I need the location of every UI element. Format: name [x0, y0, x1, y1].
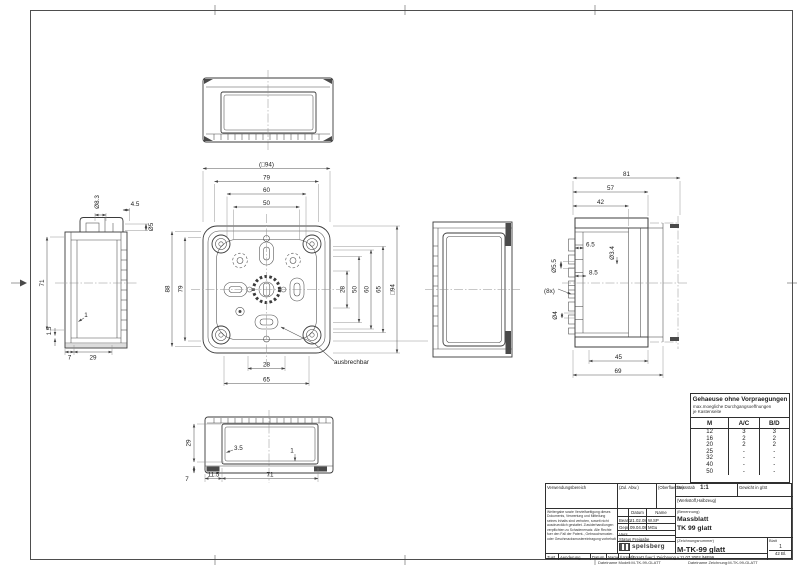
dim-label: 1 — [290, 448, 294, 455]
table-row: 2022 — [691, 442, 789, 449]
dim-label: Ø8.3 — [94, 195, 101, 209]
verwendungsbereich-cell: Verwendungsbereich — [546, 484, 618, 509]
front-view-dimensions: (□94) 79 60 50 88 79 28 50 60 65 □94 28 … — [165, 162, 401, 387]
table-row: 40-- — [691, 462, 789, 469]
drawing-sheet: (□94) 79 60 50 88 79 28 50 60 65 □94 28 … — [0, 0, 800, 566]
dim-label: 7 — [185, 476, 189, 483]
spelsberg-logo-text: spelsberg — [632, 543, 665, 550]
blatt-cell: Blatt 1 42 Bl. — [767, 538, 793, 560]
knockout-table-header: M A/C B/D — [691, 418, 789, 429]
oberflaeche-cell: (Oberflaeche) — [657, 484, 676, 509]
benennung-cell: (Benennung) Massblatt TK 99 glatt — [676, 509, 793, 538]
dim-label: 65 — [263, 377, 271, 384]
dim-label: 42 — [597, 199, 605, 206]
dim-label: (8x) — [544, 288, 555, 295]
gewicht-cell: Gewicht in g/St — [738, 484, 793, 497]
dim-label: 50 — [352, 286, 359, 294]
dim-label: (□94) — [259, 162, 274, 169]
top-view — [203, 70, 333, 150]
dim-label: 11.5 — [208, 472, 220, 479]
aenderung-cell: Aenderung — [558, 553, 590, 560]
oval-knockouts — [224, 242, 304, 329]
title-block: Verwendungsbereich (Zul. Abw.) (Oberflae… — [545, 483, 792, 559]
table-row: 25-- — [691, 449, 789, 456]
dim-label: 4.5 — [131, 201, 140, 208]
zust-cell: Zust. — [546, 553, 558, 560]
knockout-table-subtitle: max.moegliche Durchgangsoeffnungen je Ka… — [691, 404, 789, 418]
empty-label-cell — [618, 509, 629, 517]
side-elevation-view — [425, 222, 520, 357]
dim-label: 60 — [364, 286, 371, 294]
table-row: 1233 — [691, 429, 789, 436]
table-row: 50-- — [691, 469, 789, 476]
file-model-name: Dateiname Modell:M-TK-99-GLATT — [598, 560, 661, 565]
werkstoff-cell: (Werkstoff,Halbzeug) — [676, 497, 793, 509]
corner-screw — [303, 235, 321, 253]
massstab-cell: Massstab 1:1 — [676, 484, 738, 497]
dim-label: 1.5 — [46, 326, 53, 335]
dim-label: □94 — [390, 284, 397, 295]
dim-label: Ø4 — [552, 311, 559, 320]
name2-cell: Name — [606, 553, 618, 560]
logo-cell: spelsberg — [618, 542, 676, 553]
part-name-line2: TK 99 glatt — [677, 524, 792, 533]
dim-label: 88 — [165, 285, 172, 293]
dim-label: Ø3.4 — [609, 246, 616, 260]
dim-label: 7 — [68, 355, 72, 362]
part-name-line1: Massblatt — [677, 515, 792, 524]
left-side-view-dimensions: Ø8.3 4.5 Ø5 71 1.5 1 7 29 — [39, 195, 155, 362]
knockout-table-title: Gehaeuse ohne Vorpraegungen — [691, 394, 789, 404]
dim-label: 79 — [178, 285, 185, 293]
dim-label: 60 — [263, 187, 271, 194]
dim-label: 28 — [340, 286, 347, 294]
dim-label: 71 — [266, 472, 274, 479]
legal-text: Weitergabe sowie Vervielfaeltigung diese… — [546, 509, 618, 553]
top-view-rib-ticks — [214, 134, 319, 140]
spelsberg-logo-icon — [619, 543, 630, 551]
corner-screw — [212, 326, 230, 344]
gepr-name: MGu — [647, 524, 676, 531]
col-header-bd: B/D — [759, 418, 789, 428]
ausbrechbar-note: ausbrechbar — [334, 359, 369, 366]
orientation-arrow-icon — [11, 280, 27, 287]
gepr-label: Gepr. — [618, 524, 629, 531]
datum-col-header: Datum — [629, 509, 647, 517]
dim-label: 69 — [614, 368, 622, 375]
dim-label: 57 — [607, 185, 615, 192]
dim-label: 1 — [84, 312, 88, 319]
dim-label: 81 — [623, 171, 631, 178]
bearb-label: Bearb. — [618, 517, 629, 524]
knockout-table: Gehaeuse ohne Vorpraegungen max.moeglich… — [690, 393, 790, 483]
dim-label: 65 — [376, 286, 383, 294]
gepr-date: 09.04.08 — [629, 524, 647, 531]
dim-label: 6.5 — [586, 242, 595, 249]
drawing-frame — [11, 5, 797, 565]
bearb-name: W.SP — [647, 517, 676, 524]
knockout-table-body: 1233 1622 2022 25-- 32-- 40-- 50-- — [691, 429, 789, 475]
table-row: 1622 — [691, 436, 789, 443]
dim-label: 29 — [89, 355, 97, 362]
dim-label: 28 — [263, 362, 271, 369]
bearb-date: 21.02.08 — [629, 517, 647, 524]
dim-label: 3.5 — [234, 445, 243, 452]
bottom-view-rib-ticks — [214, 418, 326, 423]
left-side-view — [55, 218, 137, 349]
drawing-canvas: (□94) 79 60 50 88 79 28 50 60 65 □94 28 … — [0, 0, 800, 566]
section-view — [562, 216, 688, 349]
section-knockout-bosses — [569, 239, 584, 334]
col-header-m: M — [691, 420, 728, 427]
dim-label: 50 — [263, 200, 271, 207]
ersatz-cell: (Ersatz fuer:) Zeichnung v.11.07.2002 /M… — [629, 553, 767, 560]
zeichnungsnummer-cell: (Zeichnungsnummer) M-TK-99 glatt — [676, 538, 767, 553]
dim-label: 8.5 — [589, 270, 598, 277]
file-drawing-name: Dateiname Zeichnung:M-TK-99-GLATT — [688, 560, 758, 565]
datum2-cell: Datum — [590, 553, 606, 560]
dim-label: 79 — [263, 175, 271, 182]
col-header-ac: A/C — [728, 418, 758, 428]
corner-screw — [212, 235, 230, 253]
scale-value: 1:1 — [700, 485, 709, 491]
elevation-rib-ticks — [433, 246, 438, 326]
zul-abw-cell: (Zul. Abw.) — [618, 484, 657, 509]
left-view-rib-ticks — [121, 250, 127, 330]
urspr-cell: (Urspr.) — [618, 553, 629, 560]
dim-label: Ø5.5 — [551, 259, 558, 273]
dim-label: Ø5 — [148, 222, 155, 231]
corner-screw — [303, 326, 321, 344]
dim-label: 71 — [39, 279, 46, 287]
name-col-header: Name — [647, 509, 676, 517]
dim-label: 45 — [615, 354, 623, 361]
dim-label: 29 — [186, 439, 193, 447]
table-row: 32-- — [691, 455, 789, 462]
